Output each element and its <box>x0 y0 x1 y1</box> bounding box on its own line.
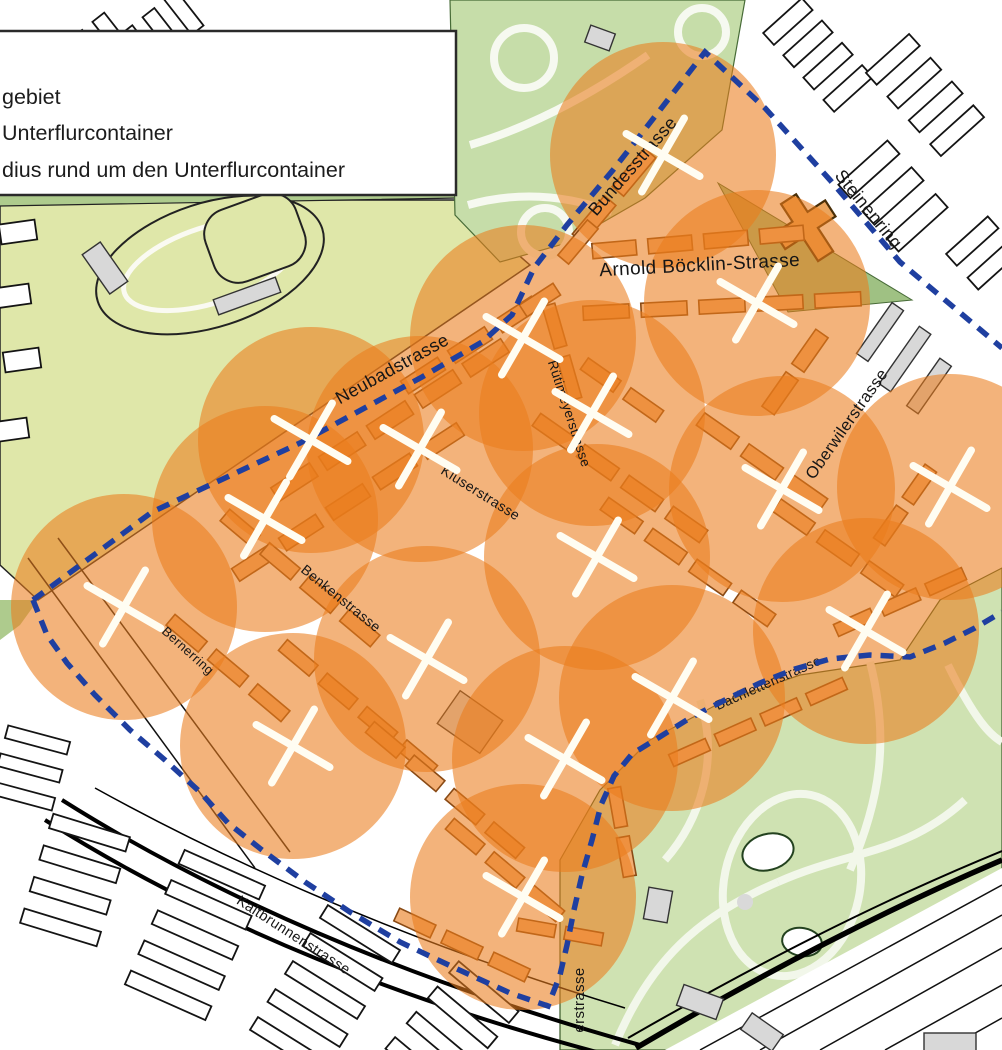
building-block <box>0 220 37 245</box>
building-block <box>30 877 111 915</box>
legend: gebiet Unterflurcontainer dius rund um d… <box>0 31 456 195</box>
map-canvas: BundesstrasseSteinenringArnold Böcklin-S… <box>0 0 1002 1050</box>
building-block <box>3 348 41 373</box>
building-block <box>5 725 70 754</box>
legend-item-radius: dius rund um den Unterflurcontainer <box>2 158 345 182</box>
building-block <box>0 781 55 810</box>
building-block <box>0 284 31 309</box>
building-block <box>0 418 29 443</box>
legend-item-container: Unterflurcontainer <box>2 121 173 145</box>
building-block <box>643 887 672 923</box>
building-block <box>39 845 120 883</box>
street-label-erstrasse: erstrasse <box>571 967 588 1032</box>
building-block <box>0 753 63 782</box>
building-block <box>924 1033 976 1050</box>
building-block <box>20 908 101 946</box>
map-screenshot: { "legend": { "items": [ { "label": "geb… <box>0 0 1002 1050</box>
legend-item-area: gebiet <box>2 85 61 109</box>
